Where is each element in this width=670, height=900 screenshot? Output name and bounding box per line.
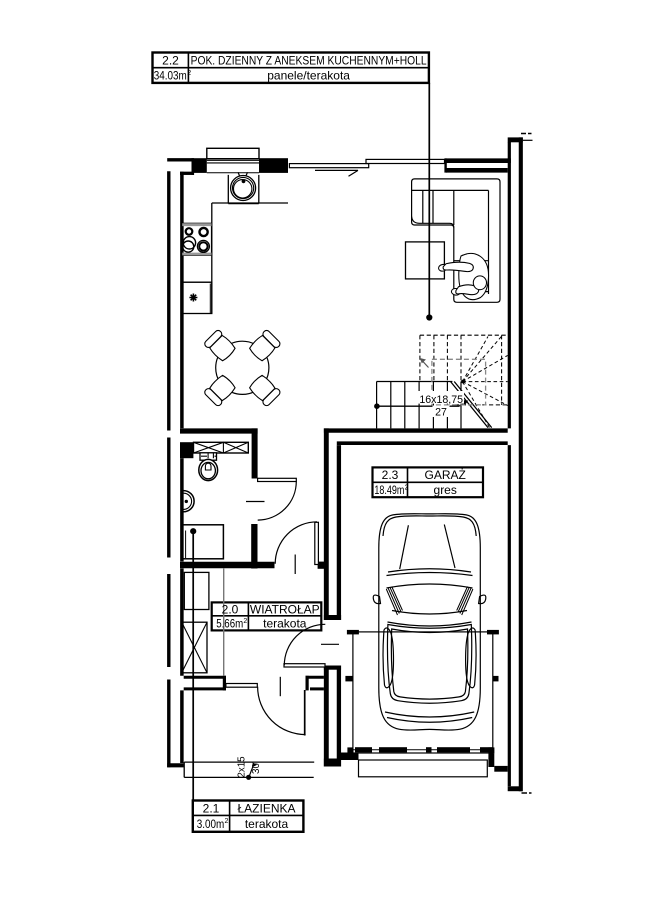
svg-text:27: 27 [435, 407, 447, 419]
svg-text:gres: gres [434, 483, 457, 497]
svg-text:2.0: 2.0 [222, 603, 239, 617]
svg-text:2.3: 2.3 [382, 468, 399, 482]
svg-text:POK. DZIENNY Z ANEKSEM KUCHENN: POK. DZIENNY Z ANEKSEM KUCHENNYM+HOLL [191, 54, 427, 68]
svg-text:2: 2 [243, 618, 247, 625]
svg-text:2.1: 2.1 [203, 802, 220, 816]
svg-text:GARAŻ: GARAŻ [425, 468, 466, 482]
svg-text:2: 2 [225, 818, 229, 825]
svg-text:5.66m: 5.66m [216, 617, 243, 631]
svg-text:2: 2 [405, 484, 409, 491]
svg-text:panele/terakota: panele/terakota [267, 69, 350, 83]
svg-text:terakota: terakota [245, 817, 289, 831]
svg-text:16x18,75: 16x18,75 [419, 394, 463, 406]
svg-text:2: 2 [187, 70, 191, 77]
svg-text:18.49m: 18.49m [374, 483, 404, 497]
svg-text:34.03m: 34.03m [154, 69, 187, 83]
svg-text:WIATROŁAP: WIATROŁAP [250, 603, 320, 617]
svg-text:ŁAZIENKA: ŁAZIENKA [237, 802, 295, 816]
svg-text:2.2: 2.2 [162, 54, 179, 68]
svg-text:3.00m: 3.00m [197, 817, 225, 831]
svg-text:2x15: 2x15 [237, 756, 248, 778]
svg-text:30: 30 [251, 763, 262, 774]
svg-text:terakota: terakota [263, 617, 307, 631]
